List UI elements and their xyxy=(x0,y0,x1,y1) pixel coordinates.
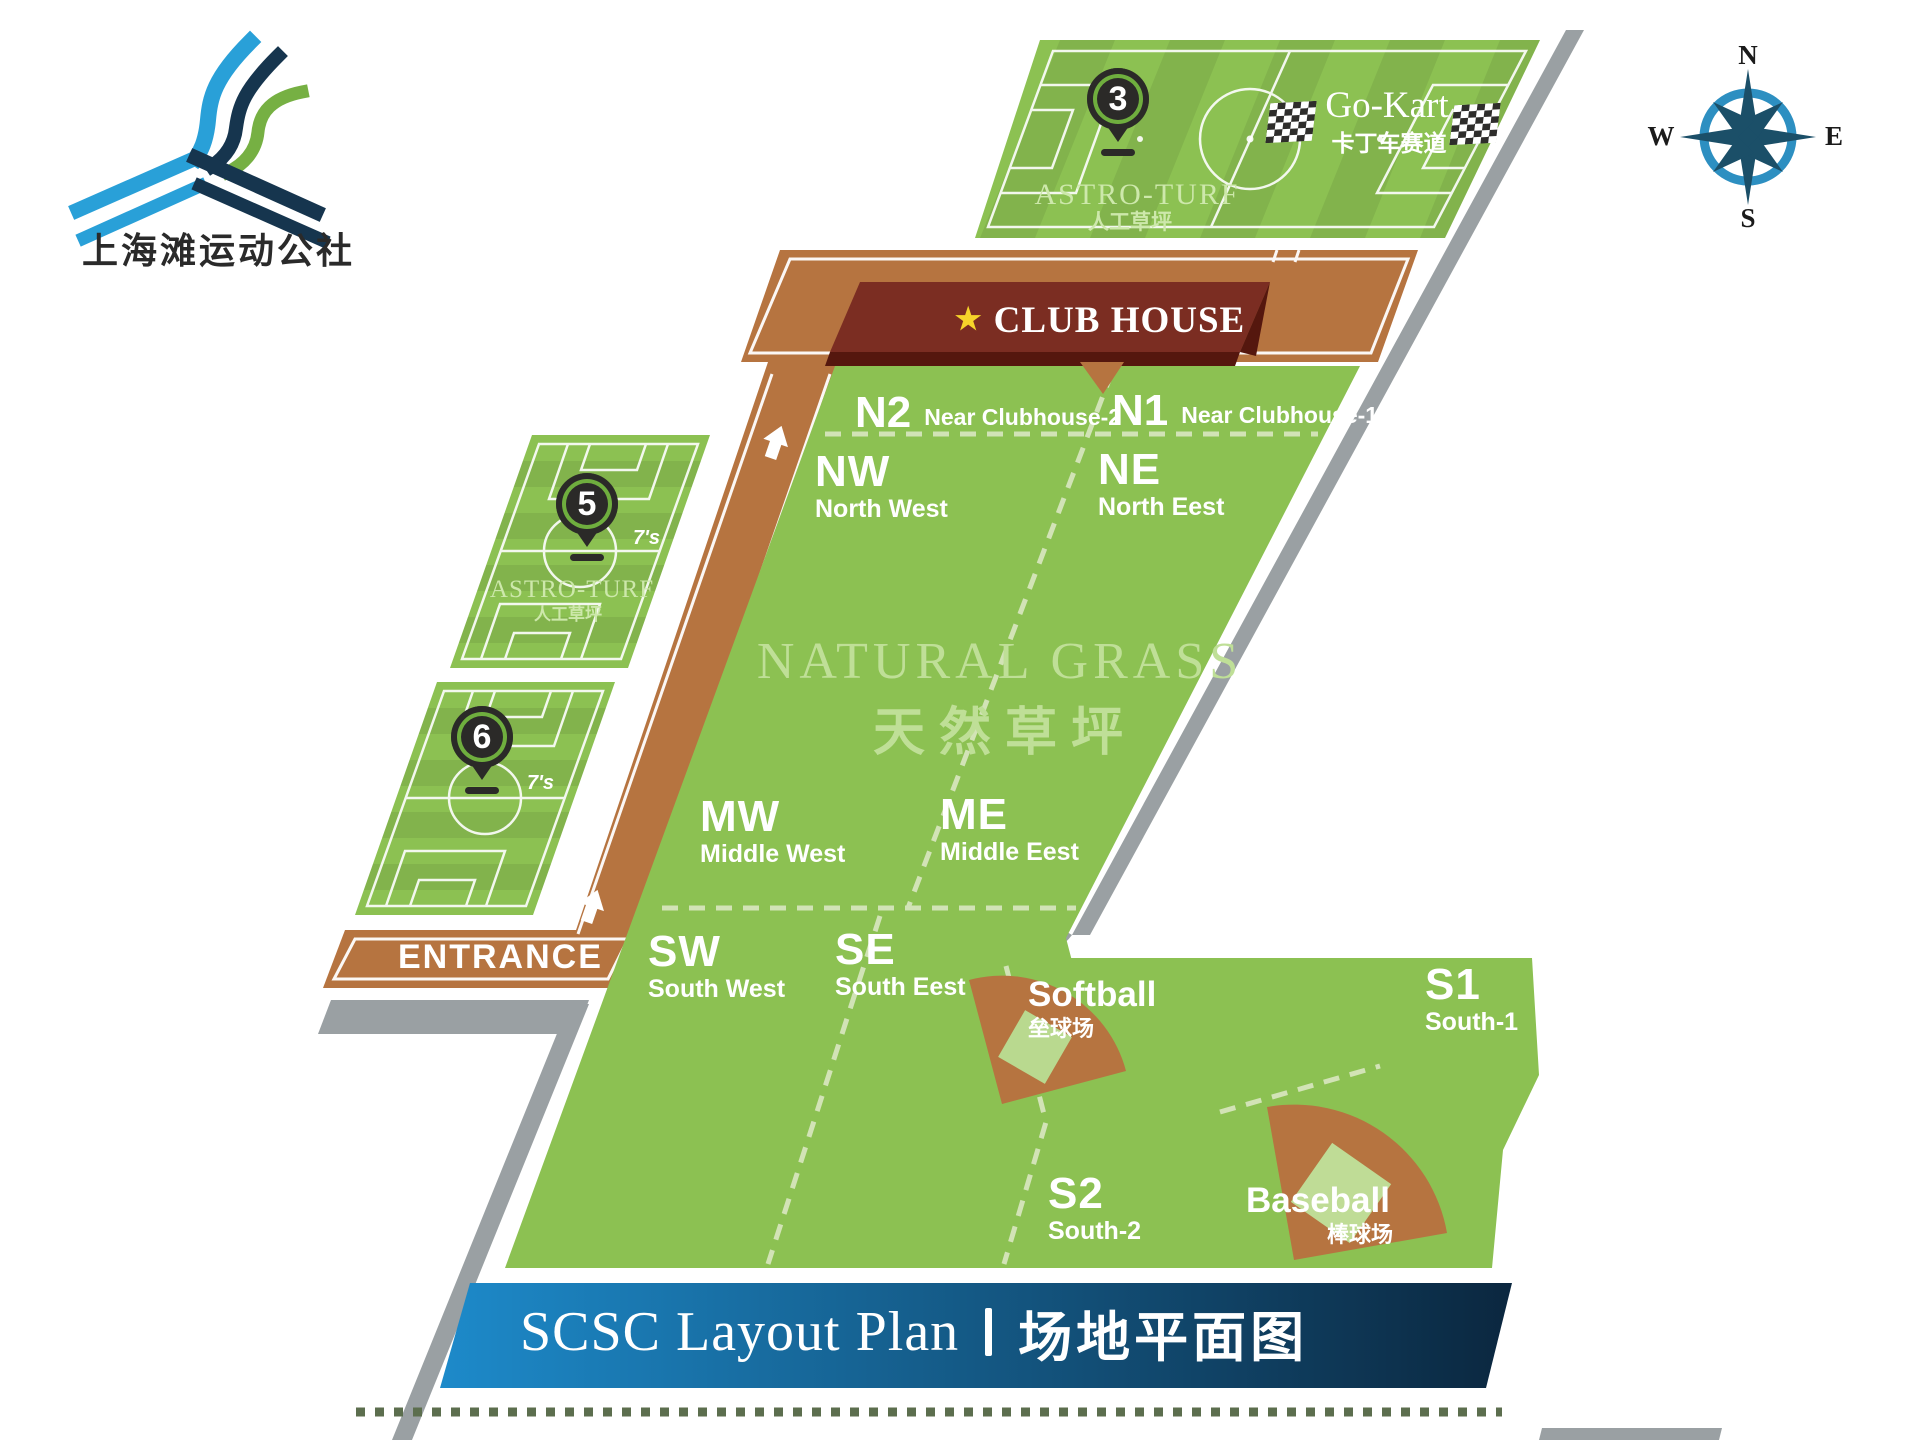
section-nw: NW North West xyxy=(815,450,948,524)
section-n1: N1 Near Clubhouse-1 xyxy=(1112,389,1378,433)
section-me: ME Middle Eest xyxy=(940,793,1079,867)
clubhouse-label-row: ★ CLUB HOUSE xyxy=(935,294,1265,346)
section-n2: N2 Near Clubhouse-2 xyxy=(855,391,1121,435)
section-mw: MW Middle West xyxy=(700,795,845,869)
banner-title-cn: 场地平面图 xyxy=(1018,1293,1308,1372)
field6-size-label: 7's xyxy=(527,772,554,795)
banner-title-row: SCSC Layout Plan 场地平面图 xyxy=(520,1300,1308,1364)
softball-label: Softball xyxy=(1028,977,1156,1012)
compass-west-label: W xyxy=(1648,121,1675,152)
compass-north-label: N xyxy=(1738,40,1758,71)
gokart-label: Go-Kart xyxy=(1325,84,1448,127)
softball-label-cn: 垒球场 xyxy=(1028,1011,1094,1043)
banner-title-en: SCSC Layout Plan xyxy=(520,1300,959,1364)
field5-marker-pin: 5 xyxy=(555,473,619,561)
field5-size-label: 7's xyxy=(633,527,660,550)
banner-divider xyxy=(985,1308,992,1356)
field5-surface-label-cn: 人工草坪 xyxy=(534,600,602,625)
pin-tail-icon xyxy=(576,531,598,547)
scsc-layout-map: 上海滩运动公社 N W E S ASTRO-TURF 人工草坪 Go-Kart … xyxy=(0,0,1920,1440)
compass-rose xyxy=(1680,69,1816,205)
gokart-label-cn: 卡丁车赛道 xyxy=(1332,124,1447,158)
pin-dash-icon xyxy=(570,554,604,561)
star-icon: ★ xyxy=(955,305,982,335)
field5-marker-number: 5 xyxy=(578,485,597,524)
natural-grass-title-cn: 天然草坪 xyxy=(873,690,1137,765)
checkered-flag-left-icon xyxy=(1265,101,1316,143)
field6-marker-pin: 6 xyxy=(450,706,514,794)
clubhouse-label: CLUB HOUSE xyxy=(994,299,1246,342)
field3-marker-number: 3 xyxy=(1109,80,1128,119)
section-sw: SW South West xyxy=(648,930,785,1004)
field6-marker-number: 6 xyxy=(473,718,492,757)
pin-dash-icon xyxy=(465,787,499,794)
pin-dash-icon xyxy=(1101,149,1135,156)
pin-tail-icon xyxy=(471,764,493,780)
logo-text: 上海滩运动公社 xyxy=(82,222,355,274)
pin-tail-icon xyxy=(1107,126,1129,142)
field3-marker-pin: 3 xyxy=(1086,68,1150,156)
section-se: SE South Eest xyxy=(835,928,966,1002)
compass-south-label: S xyxy=(1740,203,1755,234)
natural-grass-title: NATURAL GRASS xyxy=(757,632,1243,691)
field3-surface-label-cn: 人工草坪 xyxy=(1088,206,1172,236)
section-s1: S1 South-1 xyxy=(1425,963,1518,1037)
entrance-label: ENTRANCE xyxy=(398,938,603,977)
baseball-label: Baseball xyxy=(1246,1183,1390,1218)
checkered-flag-right-icon xyxy=(1449,103,1500,145)
section-ne: NE North Eest xyxy=(1098,448,1224,522)
section-s2: S2 South-2 xyxy=(1048,1172,1141,1246)
logo-mark xyxy=(78,42,322,240)
baseball-label-cn: 棒球场 xyxy=(1327,1217,1393,1249)
compass-east-label: E xyxy=(1825,121,1843,152)
